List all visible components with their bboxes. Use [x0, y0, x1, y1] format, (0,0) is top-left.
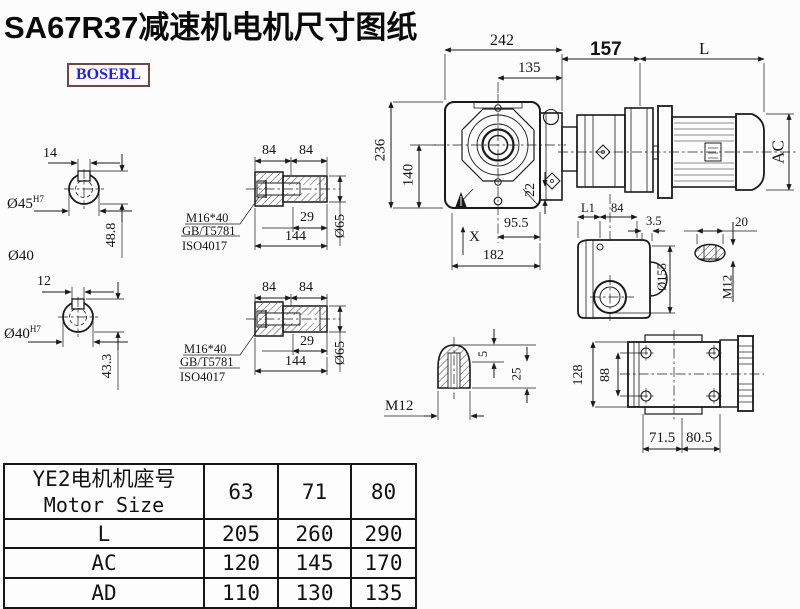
table-cell: 145 [278, 548, 351, 578]
page-title: SA67R37减速机电机尺寸图纸 [4, 2, 417, 47]
label-hollow1-bolt: M16*40 [186, 212, 228, 225]
dim-motor-length-L: L [699, 40, 709, 57]
dim-bottom-foot-right: 80.5 [686, 431, 712, 446]
dim-section2-bore-tolerance: H7 [30, 324, 41, 334]
table-row-label: L [4, 519, 204, 548]
dim-section1-bore-tolerance: H7 [33, 194, 44, 204]
dim-section1-keyway-height: 48.8 [105, 223, 119, 248]
dim-front-center-to-base: 140 [402, 164, 417, 187]
label-hollow1-standard2: ISO4017 [182, 240, 227, 253]
dim-front-foot-offset: 95.5 [504, 217, 529, 231]
dim-front-center-to-face: 135 [518, 61, 541, 76]
table-cell: 205 [204, 519, 278, 548]
table-header-en: Motor Size [5, 493, 203, 517]
label-tip-thread-M12: M12 [385, 399, 413, 414]
technical-drawing-page: SA67R37减速机电机尺寸图纸 BOSERL 14 Ø45H7 48.8 Ø4… [0, 0, 800, 609]
table-row-label: AD [4, 578, 204, 608]
label-hollow2-standard2: ISO4017 [180, 371, 225, 384]
dim-hollow2-diameter: Ø65 [334, 341, 348, 365]
dim-section1-keyway-width: 14 [43, 147, 57, 161]
dim-side-L1: L1 [581, 202, 595, 215]
dim-hollow2-seg2: 84 [299, 281, 313, 295]
dim-bottom-overall: 128 [572, 365, 586, 386]
dim-hollow1-bore-depth: 29 [300, 211, 314, 225]
dim-hollow1-seg1: 84 [262, 144, 276, 158]
table-cell: 130 [278, 578, 351, 608]
dim-adapter-length: 157 [590, 40, 622, 59]
dim-bottom-foot-left: 71.5 [649, 431, 675, 446]
label-datum-x: X [469, 230, 480, 245]
dim-hollow1-seg2: 84 [299, 144, 313, 158]
table-header-cn: YE2电机机座号 [5, 466, 203, 492]
dim-key-length: 20 [735, 215, 748, 228]
label-shaft-diameter: Ø40 [8, 249, 34, 264]
dim-side-84: 84 [611, 202, 624, 215]
table-header-motor-size: YE2电机机座号 Motor Size [4, 464, 204, 519]
dim-hollow1-length: 144 [285, 230, 306, 244]
table-header-row: YE2电机机座号 Motor Size 63 71 80 [4, 464, 416, 519]
table-header-size-0: 63 [204, 464, 278, 519]
label-hollow2-bolt: M16*40 [184, 343, 226, 356]
dim-section2-keyway-height: 43.3 [101, 354, 115, 379]
table-cell: 170 [351, 548, 416, 578]
dim-front-overall-width: 242 [490, 33, 514, 49]
dim-side-offset: 3.5 [646, 215, 662, 228]
dim-hollow2-seg1: 84 [262, 281, 276, 295]
table-row-label: AC [4, 548, 204, 578]
motor-size-table: YE2电机机座号 Motor Size 63 71 80 L 205 260 2… [3, 463, 417, 609]
dim-front-step: 22 [524, 183, 538, 197]
dim-hollow2-length: 144 [285, 355, 306, 369]
dim-hollow1-diameter: Ø65 [334, 214, 348, 238]
brand-logo: BOSERL [67, 63, 150, 87]
dim-section1-bore: Ø45H7 [7, 195, 44, 212]
table-row-AC: AC 120 145 170 [4, 548, 416, 578]
dim-key-depth: 25 [510, 368, 523, 381]
table-cell: 135 [351, 578, 416, 608]
table-cell: 110 [204, 578, 278, 608]
dim-bottom-bolt-span: 88 [599, 368, 613, 382]
dim-section1-bore-value: Ø45 [7, 196, 33, 212]
dim-front-overall-height: 236 [374, 139, 389, 162]
label-hollow2-standard1: GB/T5781 [180, 356, 233, 369]
dim-flange-diameter: Ø155 [656, 263, 669, 291]
table-row-AD: AD 110 130 135 [4, 578, 416, 608]
dim-section2-bore-value: Ø40 [4, 326, 30, 342]
dim-hollow2-bore-depth: 29 [300, 335, 314, 349]
label-hollow1-standard1: GB/T5781 [182, 225, 235, 238]
table-header-size-1: 71 [278, 464, 351, 519]
dim-motor-diameter-AC: AC [770, 140, 787, 164]
table-header-size-2: 80 [351, 464, 416, 519]
dim-front-base-width: 182 [483, 249, 504, 263]
dim-section2-keyway-width: 12 [37, 275, 51, 289]
table-cell: 260 [278, 519, 351, 548]
table-cell: 120 [204, 548, 278, 578]
label-side-thread-M12: M12 [721, 275, 734, 300]
dim-key-height: 5 [477, 351, 490, 357]
table-row-L: L 205 260 290 [4, 519, 416, 548]
dim-section2-bore: Ø40H7 [4, 325, 41, 342]
table-cell: 290 [351, 519, 416, 548]
